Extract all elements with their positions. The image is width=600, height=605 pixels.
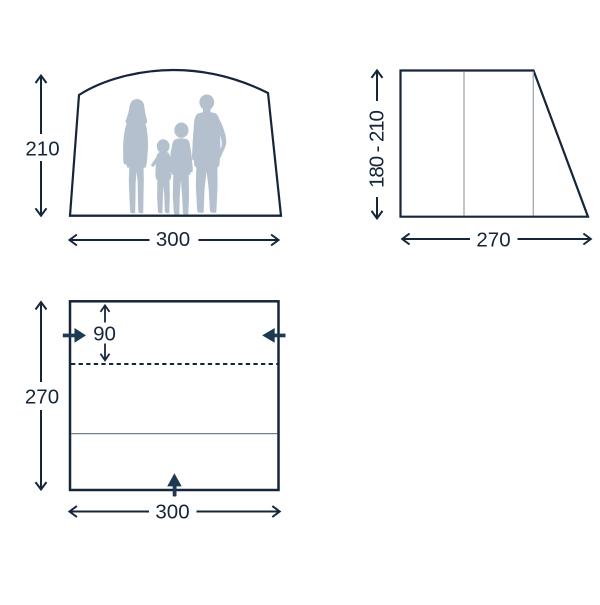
svg-text:270: 270 — [25, 386, 59, 409]
svg-text:90: 90 — [93, 323, 116, 346]
svg-text:210: 210 — [25, 137, 59, 160]
svg-text:270: 270 — [476, 229, 510, 252]
svg-text:300: 300 — [156, 228, 190, 251]
svg-text:300: 300 — [155, 501, 189, 524]
svg-text:180 - 210: 180 - 210 — [366, 110, 389, 187]
